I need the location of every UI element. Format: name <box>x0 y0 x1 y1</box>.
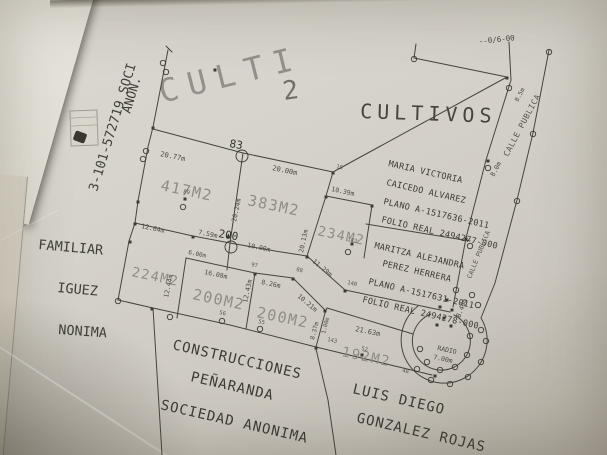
meas-1608: 16.08m <box>204 268 229 281</box>
nonima-label: NONIMA <box>58 322 108 341</box>
parcel-383: 383M2 <box>246 191 301 220</box>
meas-600: 6.00m <box>188 249 208 260</box>
meas-1264: 12.64m <box>141 222 166 235</box>
meas-2013: 20.13m <box>297 229 310 254</box>
meas-1129: 11.29m <box>311 257 334 278</box>
zone-titles: CULTI 2 CULTIVOS --0/6-00 <box>155 33 516 128</box>
meas-100: 1.00m <box>321 316 331 334</box>
photographed-survey-plan: CULTI 2 CULTIVOS --0/6-00 3-101-572719 S… <box>0 0 607 455</box>
parcel-200b: 200M2 <box>255 303 310 332</box>
meas-1021: 10.21m <box>296 292 319 313</box>
vertex-56: 56 <box>219 310 227 317</box>
vertex-48: 48 <box>402 368 410 375</box>
zone-number: 2 <box>281 75 301 107</box>
parcel-area-labels: 417M2 383M2 234M2 224M2 200M2 200M2 192M… <box>130 176 392 370</box>
parcel-200a: 200M2 <box>191 285 246 314</box>
construcciones-line3: SOCIEDAD ANONIMA <box>159 397 310 447</box>
familiar-label: FAMILIAR <box>38 237 105 259</box>
vertex-88: 88 <box>296 267 304 274</box>
meas-759: 7.59m <box>198 228 219 240</box>
luis-diego-line2: GONZALEZ ROJAS <box>355 410 487 455</box>
meas-1039: 10.39m <box>331 185 356 198</box>
vertex-97: 97 <box>251 262 259 269</box>
iguez-label: IGUEZ <box>57 280 99 299</box>
meas-1000: 10.00m <box>247 241 272 254</box>
vertex-55: 55 <box>258 319 266 326</box>
calle-publica-upper: CALLE PUBLICA <box>502 93 542 158</box>
plan-drawing: CULTI 2 CULTIVOS --0/6-00 3-101-572719 S… <box>0 0 607 455</box>
meas-2024: 20.24m <box>230 198 243 223</box>
meas-2000: 20.00m <box>272 164 298 177</box>
radio-value: 7.00m <box>433 353 454 365</box>
vertex-140: 140 <box>347 280 358 288</box>
vertex-83: 83 <box>228 137 243 152</box>
vertex-143: 143 <box>327 337 338 345</box>
meas-2163: 21.63m <box>355 325 381 338</box>
cultivos-label: CULTIVOS <box>360 99 497 128</box>
meas-80: 8.0m <box>489 160 503 178</box>
parcel-234: 234M2 <box>316 223 366 249</box>
meas-2077: 20.77m <box>160 150 186 163</box>
meas-85: 8.5m <box>514 87 527 103</box>
corner-note: --0/6-00 <box>478 33 515 46</box>
meas-826: 8.26m <box>261 278 282 290</box>
